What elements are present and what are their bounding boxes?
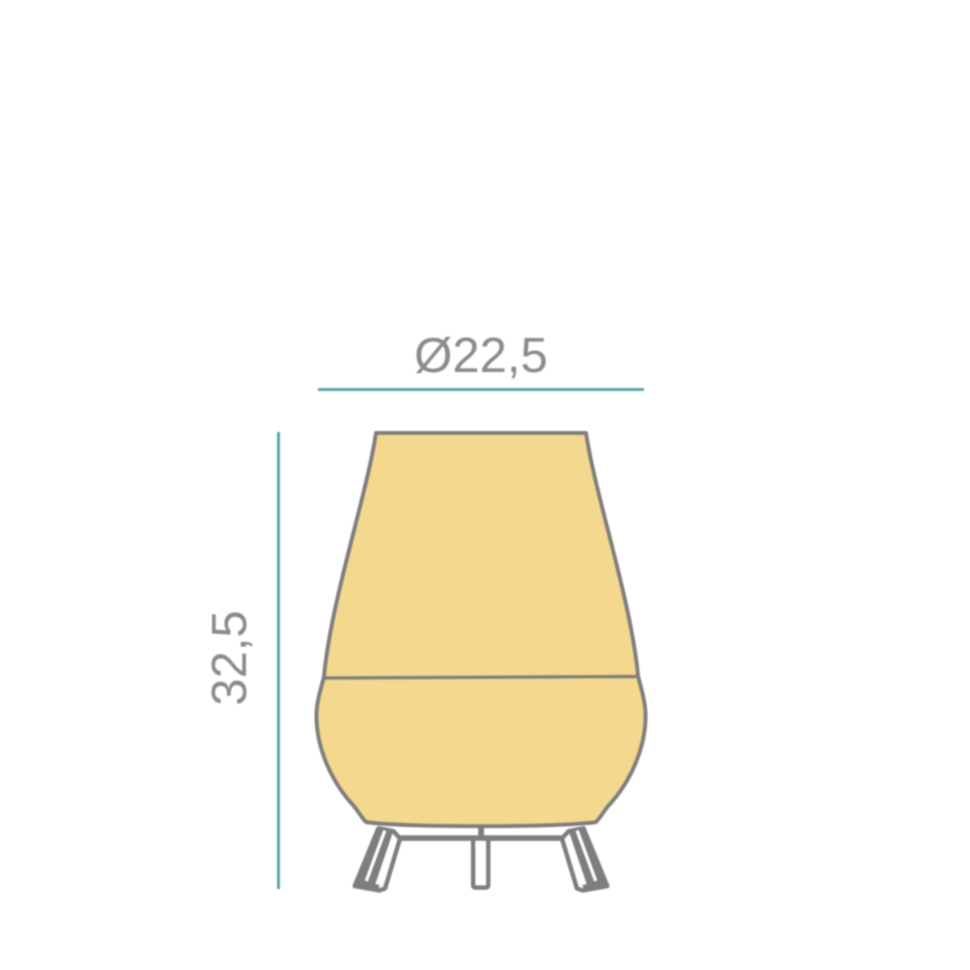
svg-text:32,5: 32,5	[203, 610, 257, 705]
svg-text:Ø22,5: Ø22,5	[414, 329, 547, 383]
